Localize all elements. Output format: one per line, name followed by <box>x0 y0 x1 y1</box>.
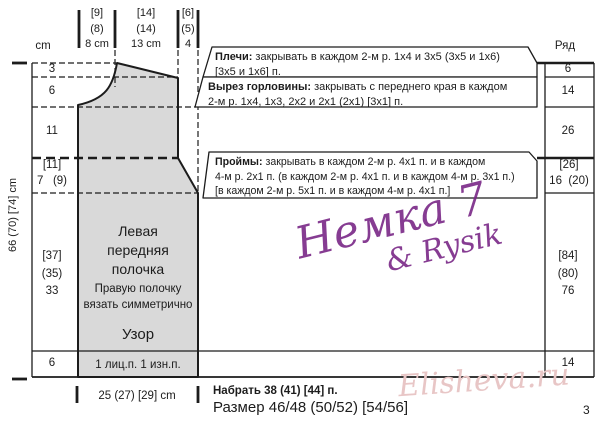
panel-title: Левая передняя полочка <box>88 222 188 279</box>
top-measurement-armhole: [6] (5) 4 <box>168 6 208 53</box>
left-scale-row-3: 11 <box>30 124 74 139</box>
right-scale-row-6: 14 <box>546 356 590 371</box>
left-scale-row-6: 6 <box>30 356 74 371</box>
top-measurement-shoulder: [14] (14) 13 cm <box>124 6 168 53</box>
bottom-width-measurement: 25 (27) [29] cm <box>87 389 187 404</box>
row-column-header: Ряд <box>544 39 586 54</box>
cm-column-header: cm <box>30 39 56 54</box>
neckline-instruction: Вырез горловины:закрывать с переднего кр… <box>208 80 534 109</box>
shoulders-label: Плечи: <box>215 51 252 63</box>
page-number: 3 <box>583 403 590 418</box>
right-scale-row-4: [26] 16 (20) <box>544 157 594 189</box>
right-scale-row-3: 26 <box>546 124 590 139</box>
shoulders-instruction: Плечи:закрывать в каждом 2-м р. 1x4 и 3x… <box>215 50 533 79</box>
right-scale-row-5: [84] (80) 76 <box>546 248 590 301</box>
right-scale-row-1: 6 <box>546 62 590 77</box>
panel-note: Правую полочку вязать симметрично <box>78 282 198 313</box>
left-scale-row-4: [11] 7 (9) <box>28 157 76 189</box>
cast-on-instruction: Набрать 38 (41) [44] п. <box>213 384 338 399</box>
left-scale-row-2: 6 <box>30 84 74 99</box>
knitting-pattern-schematic: cm Ряд [9] (8) 8 cm [14] (14) 13 cm [6] … <box>0 0 604 427</box>
total-length-measurement: 66 (70) [74] cm <box>6 155 20 275</box>
armholes-instruction: Проймы:закрывать в каждом 2-м р. 4x1 п. … <box>215 155 533 199</box>
left-scale-row-5: [37] (35) 33 <box>28 248 76 301</box>
pattern-label: Узор <box>88 327 188 342</box>
top-measurement-neck: [9] (8) 8 cm <box>75 6 119 53</box>
rib-pattern-label: 1 лиц.п. 1 изн.п. <box>83 358 193 373</box>
left-scale-row-1: 3 <box>30 62 74 77</box>
neckline-label: Вырез горловины: <box>208 81 311 93</box>
size-label: Размер 46/48 (50/52) [54/56] <box>213 399 408 417</box>
armholes-label: Проймы: <box>215 156 262 168</box>
right-scale-row-2: 14 <box>546 84 590 99</box>
